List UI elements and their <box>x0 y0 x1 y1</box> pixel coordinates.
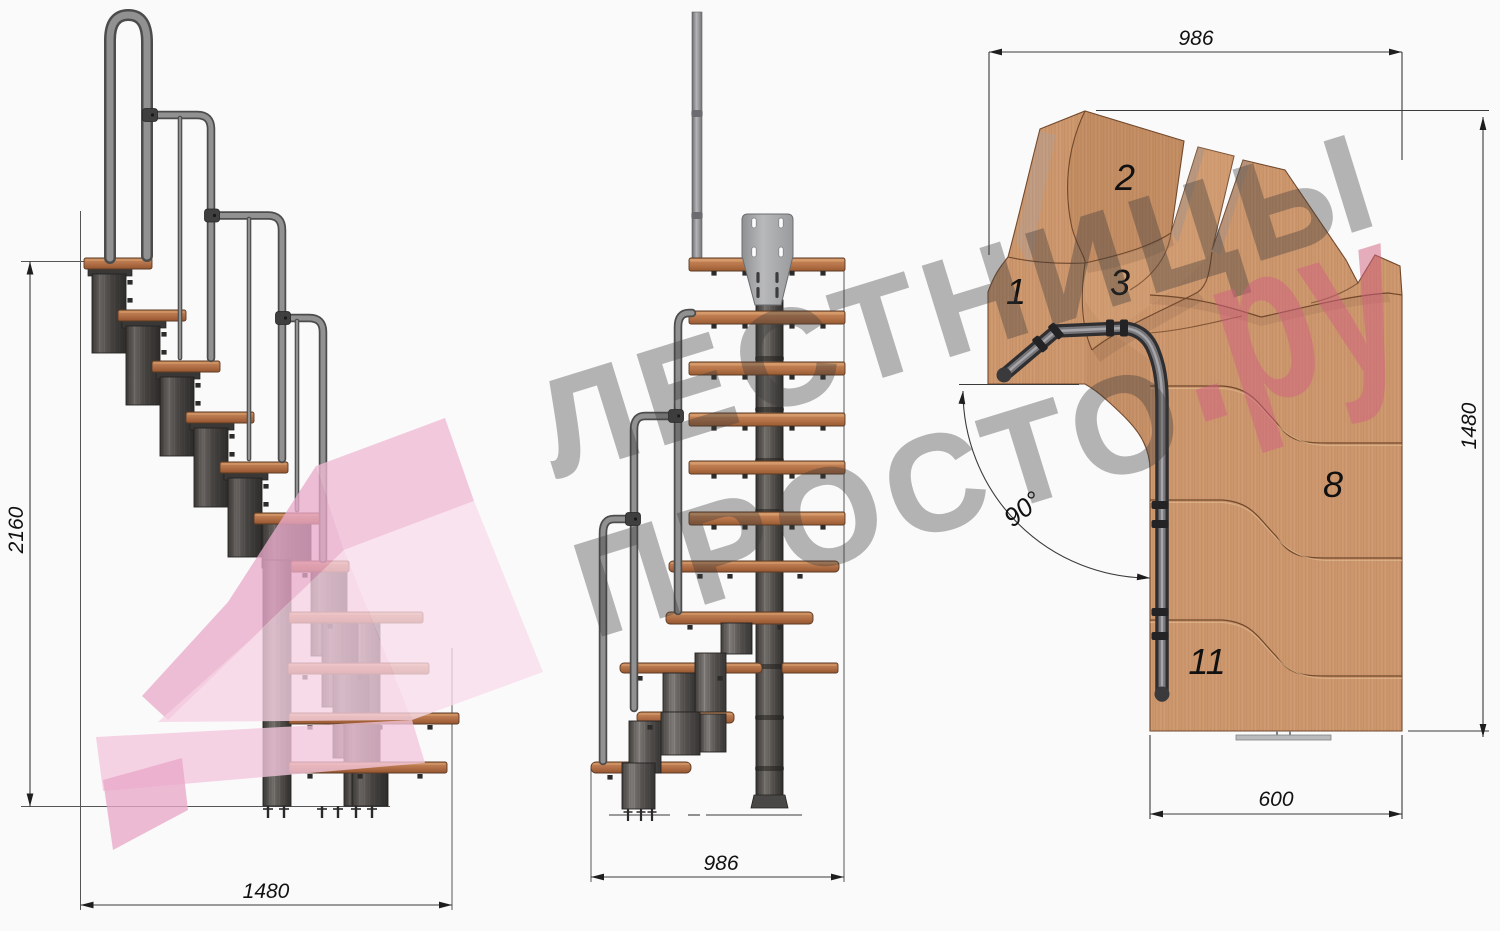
svg-text:600: 600 <box>1258 788 1293 811</box>
svg-text:8: 8 <box>1323 464 1343 505</box>
svg-text:1480: 1480 <box>1458 402 1481 449</box>
svg-text:2160: 2160 <box>5 506 28 554</box>
svg-text:1480: 1480 <box>243 880 290 903</box>
svg-text:986: 986 <box>1178 27 1213 50</box>
svg-text:986: 986 <box>703 852 738 875</box>
svg-text:11: 11 <box>1188 641 1225 682</box>
